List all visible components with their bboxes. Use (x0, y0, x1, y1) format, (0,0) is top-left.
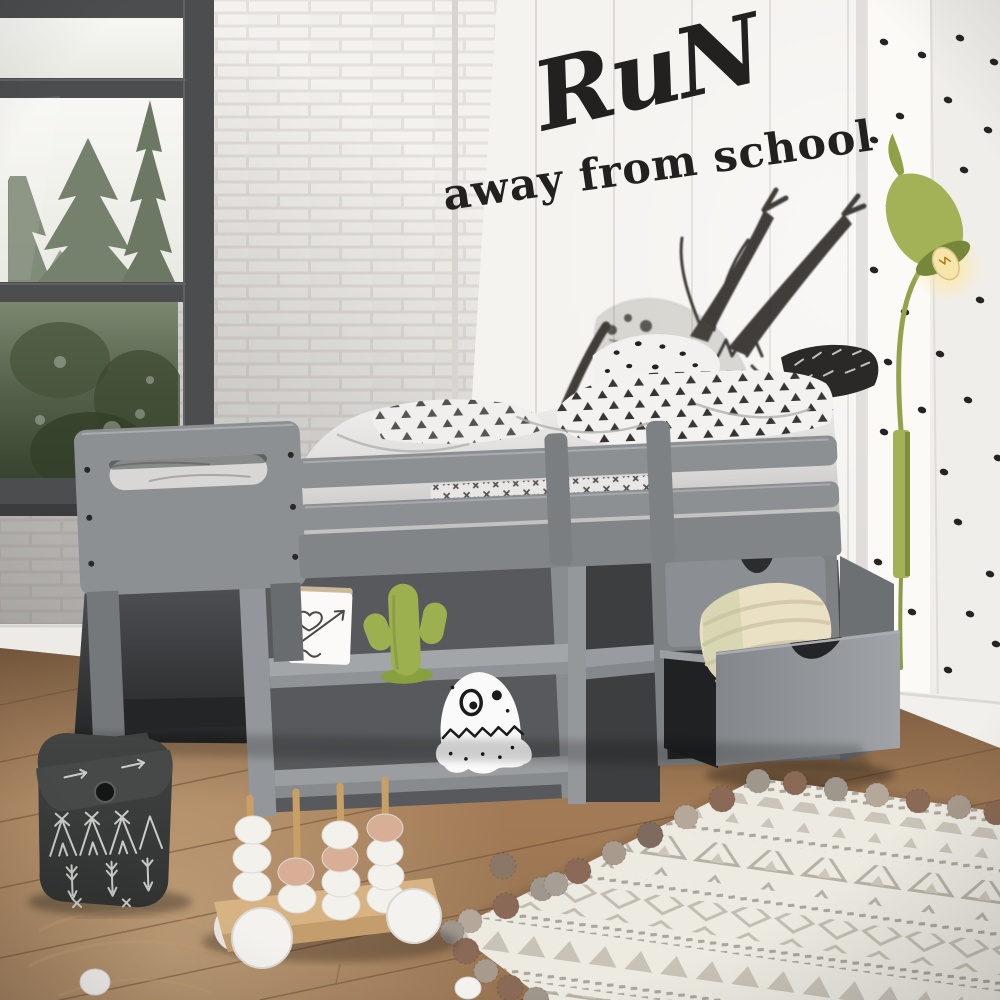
room-scene: RuN away from school (0, 0, 1000, 1000)
kids-room-photo: RuN away from school (0, 0, 1000, 1000)
vignette-overlay (0, 0, 1000, 1000)
